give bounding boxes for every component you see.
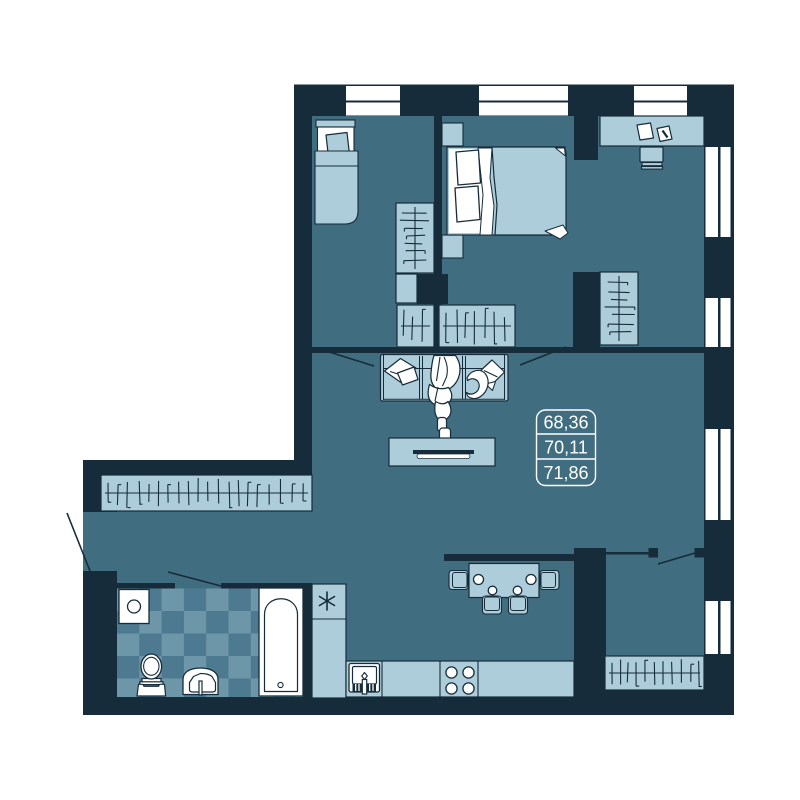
svg-text:71,86: 71,86 <box>543 463 588 483</box>
svg-text:70,11: 70,11 <box>544 438 588 458</box>
svg-text:68,36: 68,36 <box>543 413 588 433</box>
